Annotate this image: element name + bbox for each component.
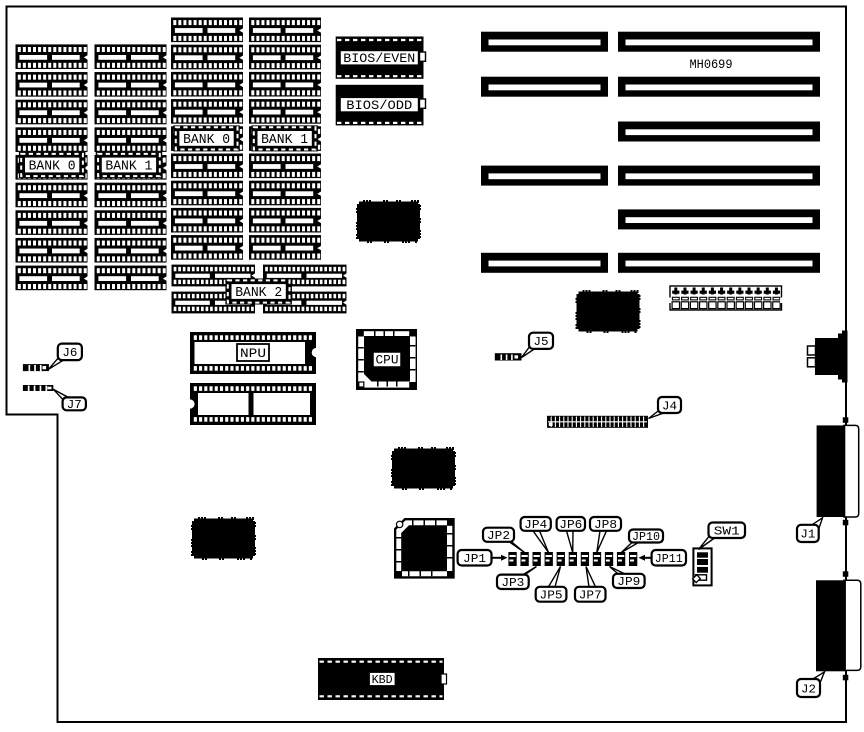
svg-text:CPU: CPU [376, 354, 399, 368]
svg-text:JP10: JP10 [632, 531, 660, 544]
svg-text:NPU: NPU [240, 346, 266, 361]
svg-text:J4: J4 [662, 399, 677, 413]
svg-text:BIOS/ODD: BIOS/ODD [346, 99, 412, 113]
svg-text:JP1: JP1 [463, 553, 486, 566]
svg-text:JP11: JP11 [655, 553, 683, 566]
svg-text:BANK 2: BANK 2 [235, 286, 282, 301]
svg-text:J1: J1 [800, 528, 815, 542]
svg-text:J7: J7 [67, 398, 82, 412]
svg-text:BANK 0: BANK 0 [29, 160, 76, 175]
svg-text:JP3: JP3 [501, 577, 524, 590]
svg-text:SW1: SW1 [714, 525, 740, 539]
svg-text:KBD: KBD [372, 674, 393, 687]
svg-text:JP5: JP5 [540, 589, 563, 602]
svg-text:BANK 0: BANK 0 [183, 133, 230, 148]
svg-text:JP6: JP6 [559, 519, 582, 532]
svg-text:JP7: JP7 [579, 589, 602, 602]
svg-text:JP4: JP4 [524, 519, 547, 532]
svg-text:BIOS/EVEN: BIOS/EVEN [343, 52, 415, 66]
svg-text:BANK 1: BANK 1 [261, 133, 308, 148]
svg-text:MH0699: MH0699 [690, 58, 733, 72]
svg-text:J6: J6 [62, 346, 77, 360]
svg-text:J5: J5 [534, 335, 549, 349]
svg-text:BANK 1: BANK 1 [105, 160, 152, 175]
svg-text:JP9: JP9 [617, 576, 640, 589]
svg-text:J2: J2 [801, 682, 816, 696]
svg-text:JP2: JP2 [487, 530, 510, 543]
svg-text:JP8: JP8 [594, 519, 617, 532]
